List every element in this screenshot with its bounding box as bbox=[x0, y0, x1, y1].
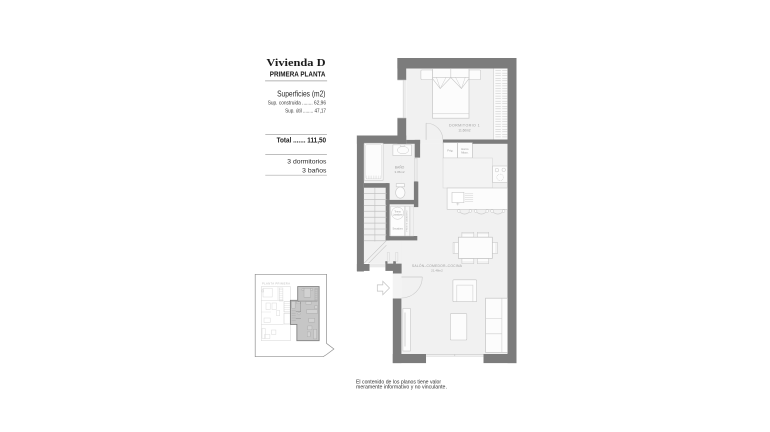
svg-text:Vivienda D: Vivienda D bbox=[266, 58, 325, 69]
svg-text:Horno: Horno bbox=[461, 147, 469, 151]
svg-text:Frig.: Frig. bbox=[447, 149, 453, 153]
svg-text:3 dormitorios: 3 dormitorios bbox=[287, 159, 327, 166]
svg-text:Sup. útil ........ 47,17: Sup. útil ........ 47,17 bbox=[285, 109, 326, 115]
svg-text:DORMITORIO 1: DORMITORIO 1 bbox=[449, 124, 480, 128]
svg-text:Superficies (m2): Superficies (m2) bbox=[277, 89, 325, 99]
svg-text:SALÓN–COMEDOR–COCINA: SALÓN–COMEDOR–COCINA bbox=[412, 263, 463, 268]
svg-text:PRIMERA PLANTA: PRIMERA PLANTA bbox=[270, 71, 326, 79]
svg-text:Termo: Termo bbox=[394, 210, 401, 213]
svg-text:Lavadora: Lavadora bbox=[393, 213, 403, 216]
svg-text:11.60m2: 11.60m2 bbox=[458, 129, 470, 133]
svg-text:FRENTE LAVADERO: FRENTE LAVADERO bbox=[405, 210, 408, 231]
svg-text:meramente informativo y no vin: meramente informativo y no vinculante. bbox=[356, 385, 447, 391]
svg-text:BAÑO: BAÑO bbox=[395, 164, 405, 169]
svg-text:Micro.: Micro. bbox=[461, 150, 469, 154]
svg-text:21.48m2: 21.48m2 bbox=[431, 269, 443, 273]
svg-text:Secadora: Secadora bbox=[392, 228, 403, 231]
svg-text:3 baños: 3 baños bbox=[302, 167, 327, 174]
svg-text:Sup. construida ........ 62,96: Sup. construida ........ 62,96 bbox=[268, 101, 326, 107]
svg-text:Total ....... 111,50: Total ....... 111,50 bbox=[277, 138, 327, 145]
svg-text:3.05m2: 3.05m2 bbox=[394, 170, 404, 174]
svg-text:PLANTA PRIMERA: PLANTA PRIMERA bbox=[262, 281, 290, 285]
